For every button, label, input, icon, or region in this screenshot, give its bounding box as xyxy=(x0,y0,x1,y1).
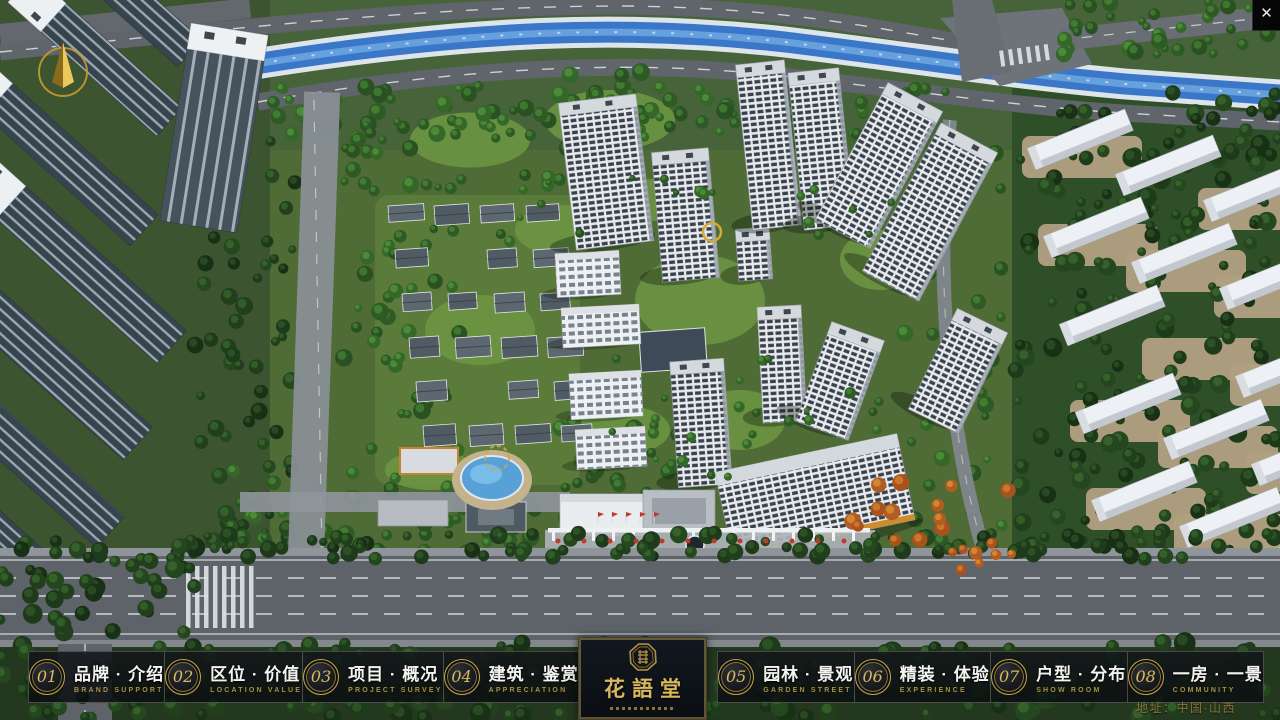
nav-label-en: COMMUNITY xyxy=(1173,687,1236,694)
nav-group-left: 01 品牌 · 介绍 BRAND SUPPORT 02 区位 · 价值 LOCA… xyxy=(28,651,561,703)
nav-badge-06: 06 xyxy=(855,659,891,695)
nav-label-en: APPRECIATION xyxy=(489,687,568,694)
nav-label-en: EXPERIENCE xyxy=(900,687,967,694)
nav-label-zh: 户型 · 分布 xyxy=(1036,660,1126,685)
nav-item-architecture[interactable]: 04 建筑 · 鉴赏 APPRECIATION xyxy=(443,651,580,703)
north-arrow-compass-icon xyxy=(32,38,94,100)
nav-label-en: BRAND SUPPORT xyxy=(74,687,164,694)
nav-badge-07: 07 xyxy=(991,659,1027,695)
nav-badge-04: 04 xyxy=(444,659,480,695)
nav-label-zh: 园林 · 景观 xyxy=(763,660,853,685)
presentation-window: ✕ 01 品牌 · 介绍 BRAND SUPPORT 02 区位 · 价值 LO… xyxy=(0,0,1280,720)
nav-item-location-value[interactable]: 02 区位 · 价值 LOCATION VALUE xyxy=(164,651,302,703)
nav-item-unit-distribution[interactable]: 07 户型 · 分布 SHOW ROOM xyxy=(990,651,1127,703)
octagon-seal-emblem-icon xyxy=(628,642,658,672)
nav-item-interior-experience[interactable]: 06 精装 · 体验 EXPERIENCE xyxy=(854,651,991,703)
nav-badge-03: 03 xyxy=(303,659,339,695)
nav-label-en: PROJECT SURVEY xyxy=(348,687,442,694)
nav-label-zh: 区位 · 价值 xyxy=(210,660,300,685)
nav-label-zh: 一房 · 一景 xyxy=(1173,660,1263,685)
nav-badge-02: 02 xyxy=(165,659,201,695)
site-aerial-view xyxy=(0,0,1280,720)
project-address: 地址：中国·山西 xyxy=(1136,699,1236,716)
nav-label-en: LOCATION VALUE xyxy=(210,687,302,694)
nav-item-room-view[interactable]: 08 一房 · 一景 COMMUNITY xyxy=(1127,651,1265,703)
nav-badge-08: 08 xyxy=(1128,659,1164,695)
nav-badge-01: 01 xyxy=(29,659,65,695)
nav-badge-05: 05 xyxy=(718,659,754,695)
nav-item-project-survey[interactable]: 03 项目 · 概况 PROJECT SURVEY xyxy=(302,651,442,703)
nav-item-garden-landscape[interactable]: 05 园林 · 景观 GARDEN STREET xyxy=(717,651,854,703)
brand-logo-panel[interactable]: 花語堂 xyxy=(578,637,707,720)
nav-label-zh: 品牌 · 介绍 xyxy=(74,660,164,685)
nav-label-en: SHOW ROOM xyxy=(1036,687,1101,694)
brand-tagline-rule xyxy=(610,707,676,710)
nav-label-zh: 项目 · 概况 xyxy=(348,660,438,685)
nav-label-en: GARDEN STREET xyxy=(763,687,852,694)
nav-group-right: 05 园林 · 景观 GARDEN STREET 06 精装 · 体验 EXPE… xyxy=(717,651,1264,703)
brand-name: 花語堂 xyxy=(597,673,688,703)
nav-label-zh: 精装 · 体验 xyxy=(900,660,990,685)
close-button[interactable]: ✕ xyxy=(1252,0,1280,31)
nav-item-brand-intro[interactable]: 01 品牌 · 介绍 BRAND SUPPORT xyxy=(28,651,164,703)
